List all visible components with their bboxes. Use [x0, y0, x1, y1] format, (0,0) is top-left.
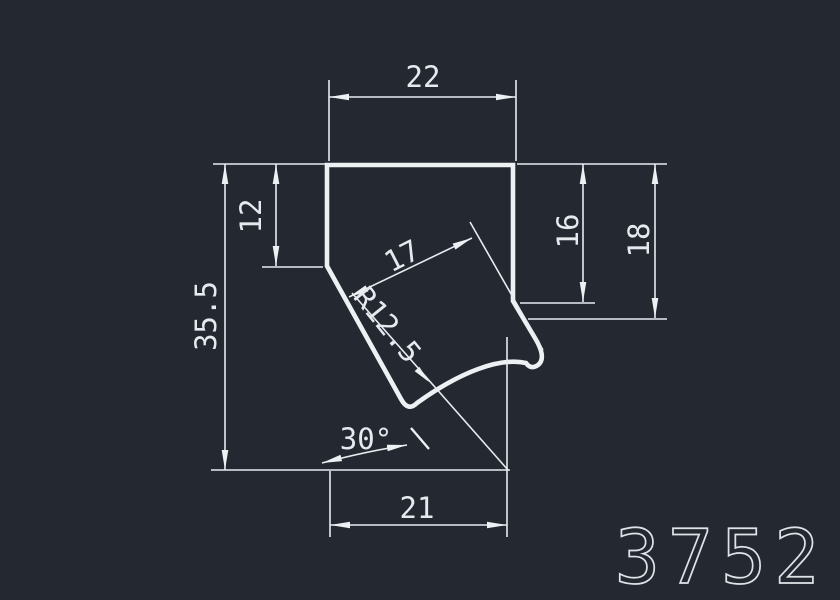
dim-overall-height-label: 35.5: [189, 281, 223, 351]
dim-top-width-label: 22: [406, 60, 441, 94]
dim-slot-width-label: 17: [379, 233, 426, 279]
angle-reference-segment: [411, 428, 429, 449]
part-number: 3752: [615, 513, 828, 600]
cad-canvas: 22 35.5 12 17 R12.5 16 18: [0, 0, 840, 600]
dim-left-inner-height: 12: [234, 164, 323, 267]
dim-top-width: 22: [329, 60, 516, 161]
profile-outline: [327, 165, 542, 407]
dim-right-outer-height: 18: [528, 164, 667, 319]
dim-left-inner-height-label: 12: [234, 199, 268, 234]
arrowhead: [415, 367, 429, 382]
dim-right-outer-height-label: 18: [622, 223, 656, 258]
dim-angle: 30°: [322, 422, 429, 463]
drawing-area: 22 35.5 12 17 R12.5 16 18: [0, 0, 840, 600]
extension-line: [470, 222, 543, 350]
dim-right-inner-height-label: 16: [551, 214, 585, 249]
dim-bottom-width-label: 21: [400, 491, 435, 525]
dim-angle-label: 30°: [340, 422, 392, 456]
